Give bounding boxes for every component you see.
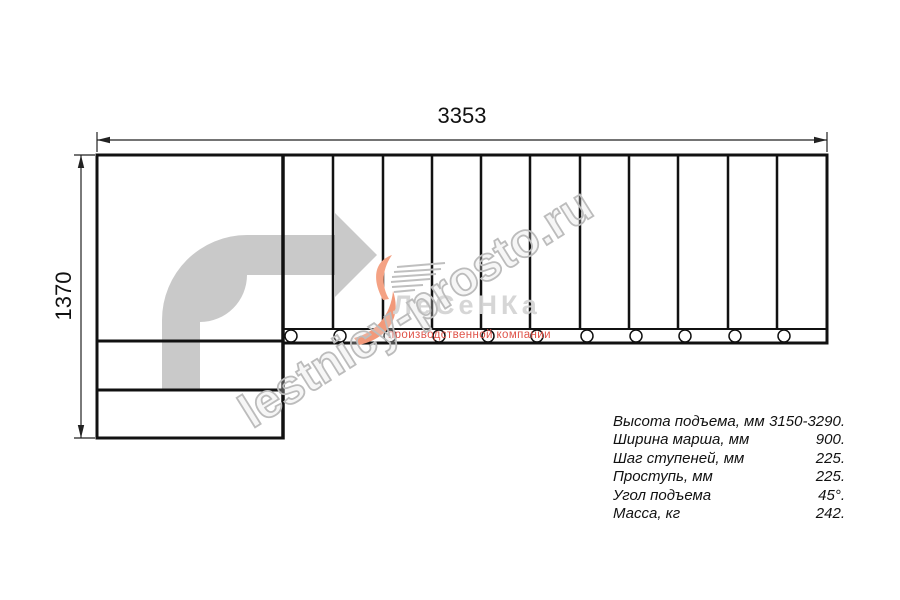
spec-label: Ширина марша, мм [613,431,749,449]
spec-row-angle: Угол подъема 45°. [613,487,845,505]
dimension-height [74,155,95,438]
spec-value: 225. [816,450,845,468]
dimension-width [97,132,827,152]
spec-label: Угол подъема [613,487,711,505]
spec-label: Высота подъема, мм [613,413,765,431]
spec-row-tread: Проступь, мм 225. [613,468,845,486]
spec-value: 900. [816,431,845,449]
spec-label: Проступь, мм [613,468,713,486]
spec-value: 242. [816,505,845,523]
spec-table: Высота подъема, мм 3150-3290. Ширина мар… [613,413,845,523]
spec-value: 3150-3290. [769,413,845,431]
spec-row-height: Высота подъема, мм 3150-3290. [613,413,845,431]
spec-row-march-width: Ширина марша, мм 900. [613,431,845,449]
spec-value: 45°. [818,487,845,505]
blueprint-canvas: 3353 1370 ЛеСеНКа производственной компа… [0,0,900,600]
spec-row-mass: Масса, кг 242. [613,505,845,523]
dimension-width-label: 3353 [402,103,522,129]
spec-row-step-pitch: Шаг ступеней, мм 225. [613,450,845,468]
spec-label: Масса, кг [613,505,680,523]
spec-value: 225. [816,468,845,486]
spec-label: Шаг ступеней, мм [613,450,744,468]
dimension-height-label: 1370 [51,246,77,346]
